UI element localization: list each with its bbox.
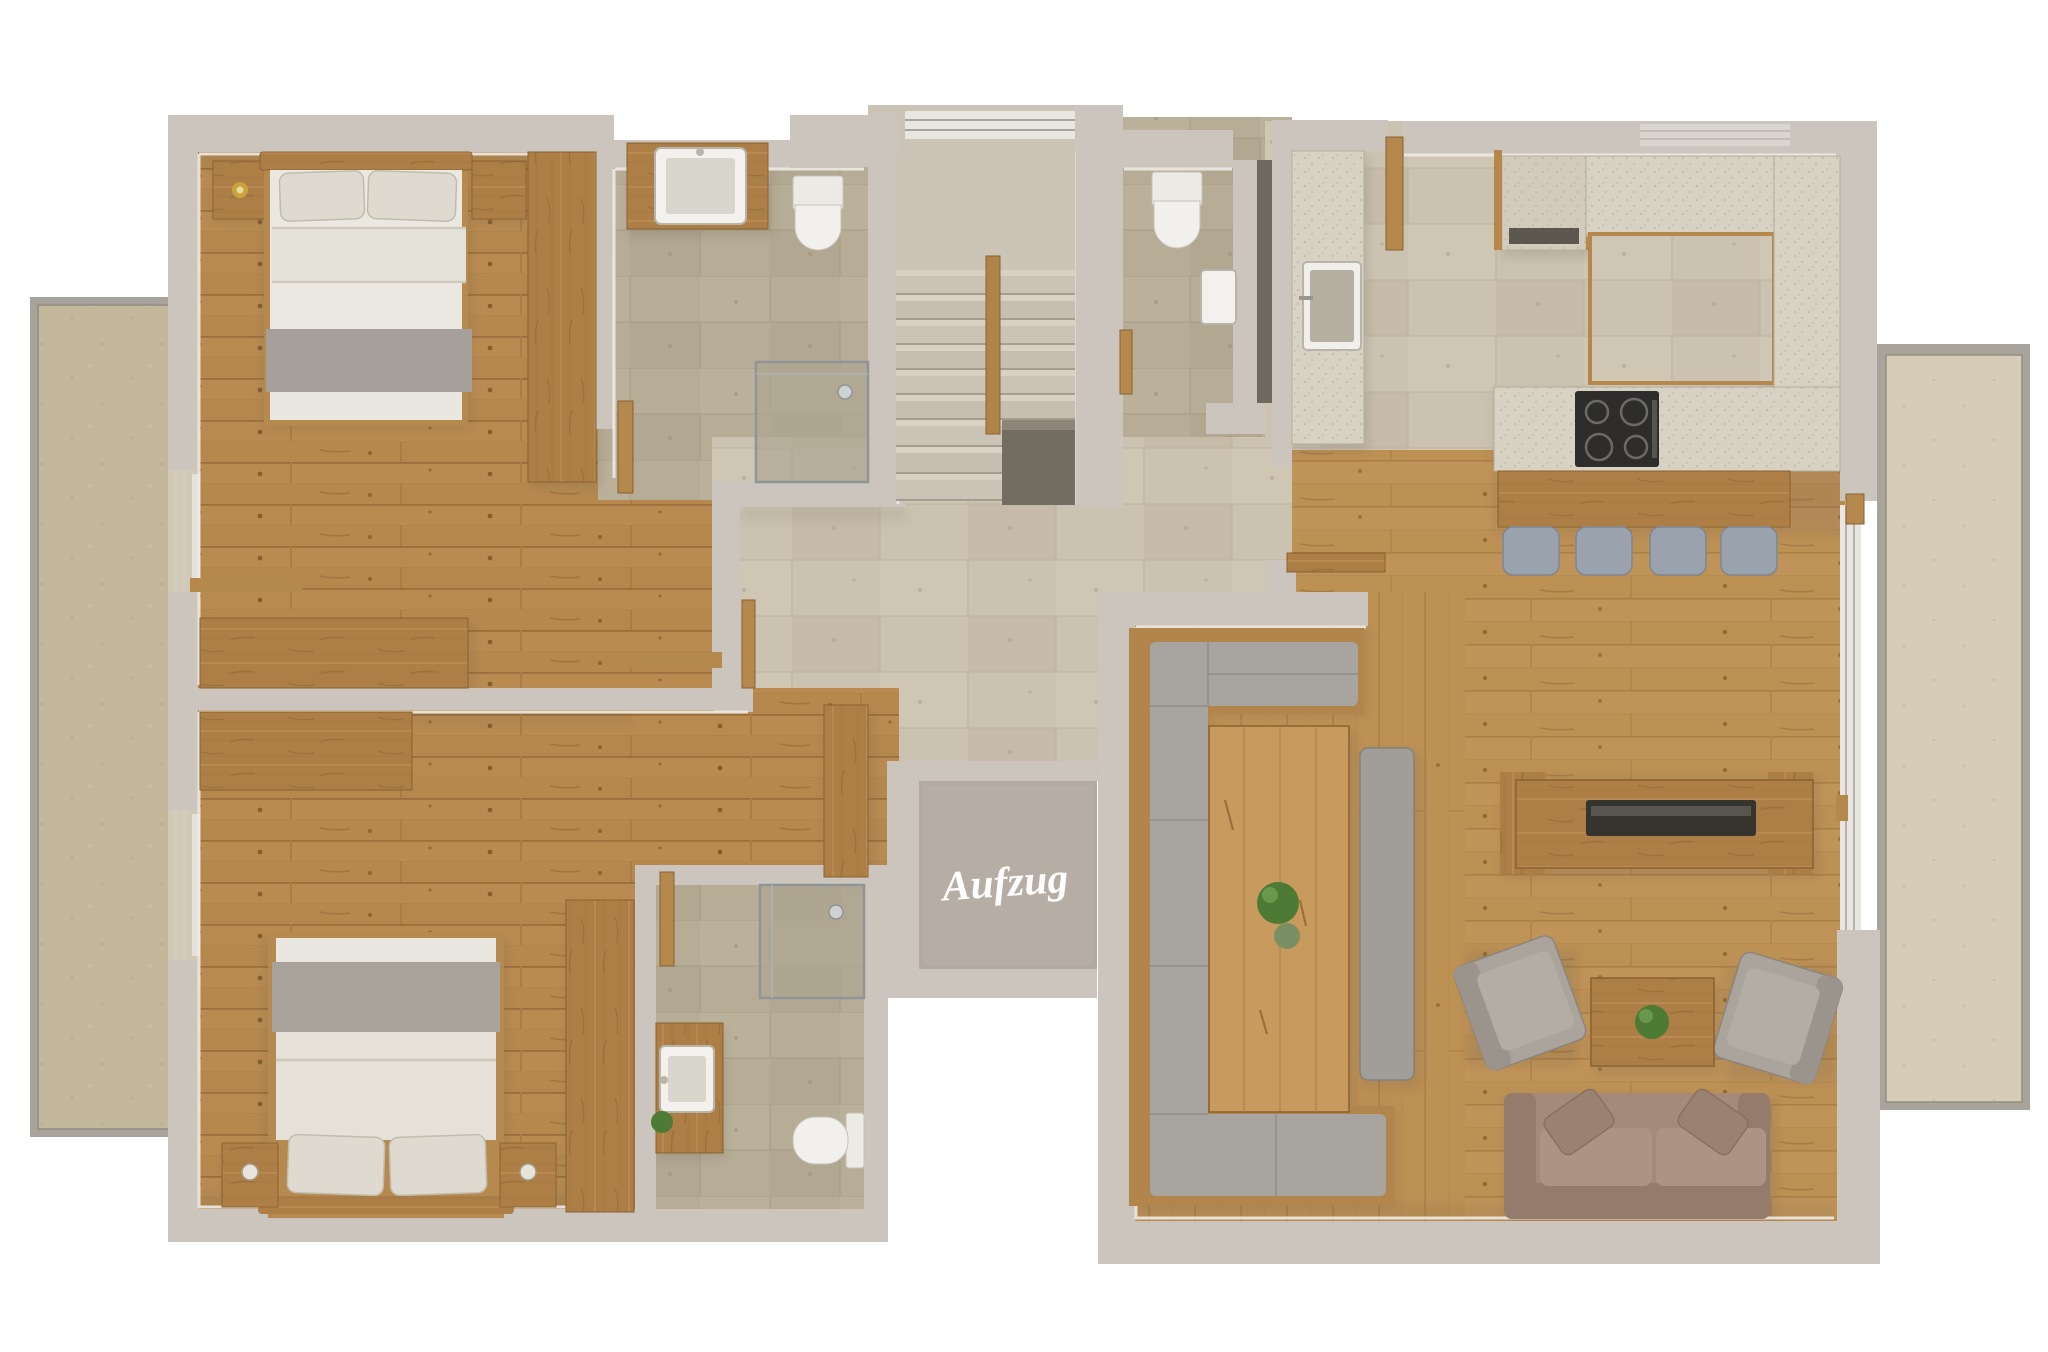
svg-text:Aufzug: Aufzug bbox=[938, 856, 1070, 911]
